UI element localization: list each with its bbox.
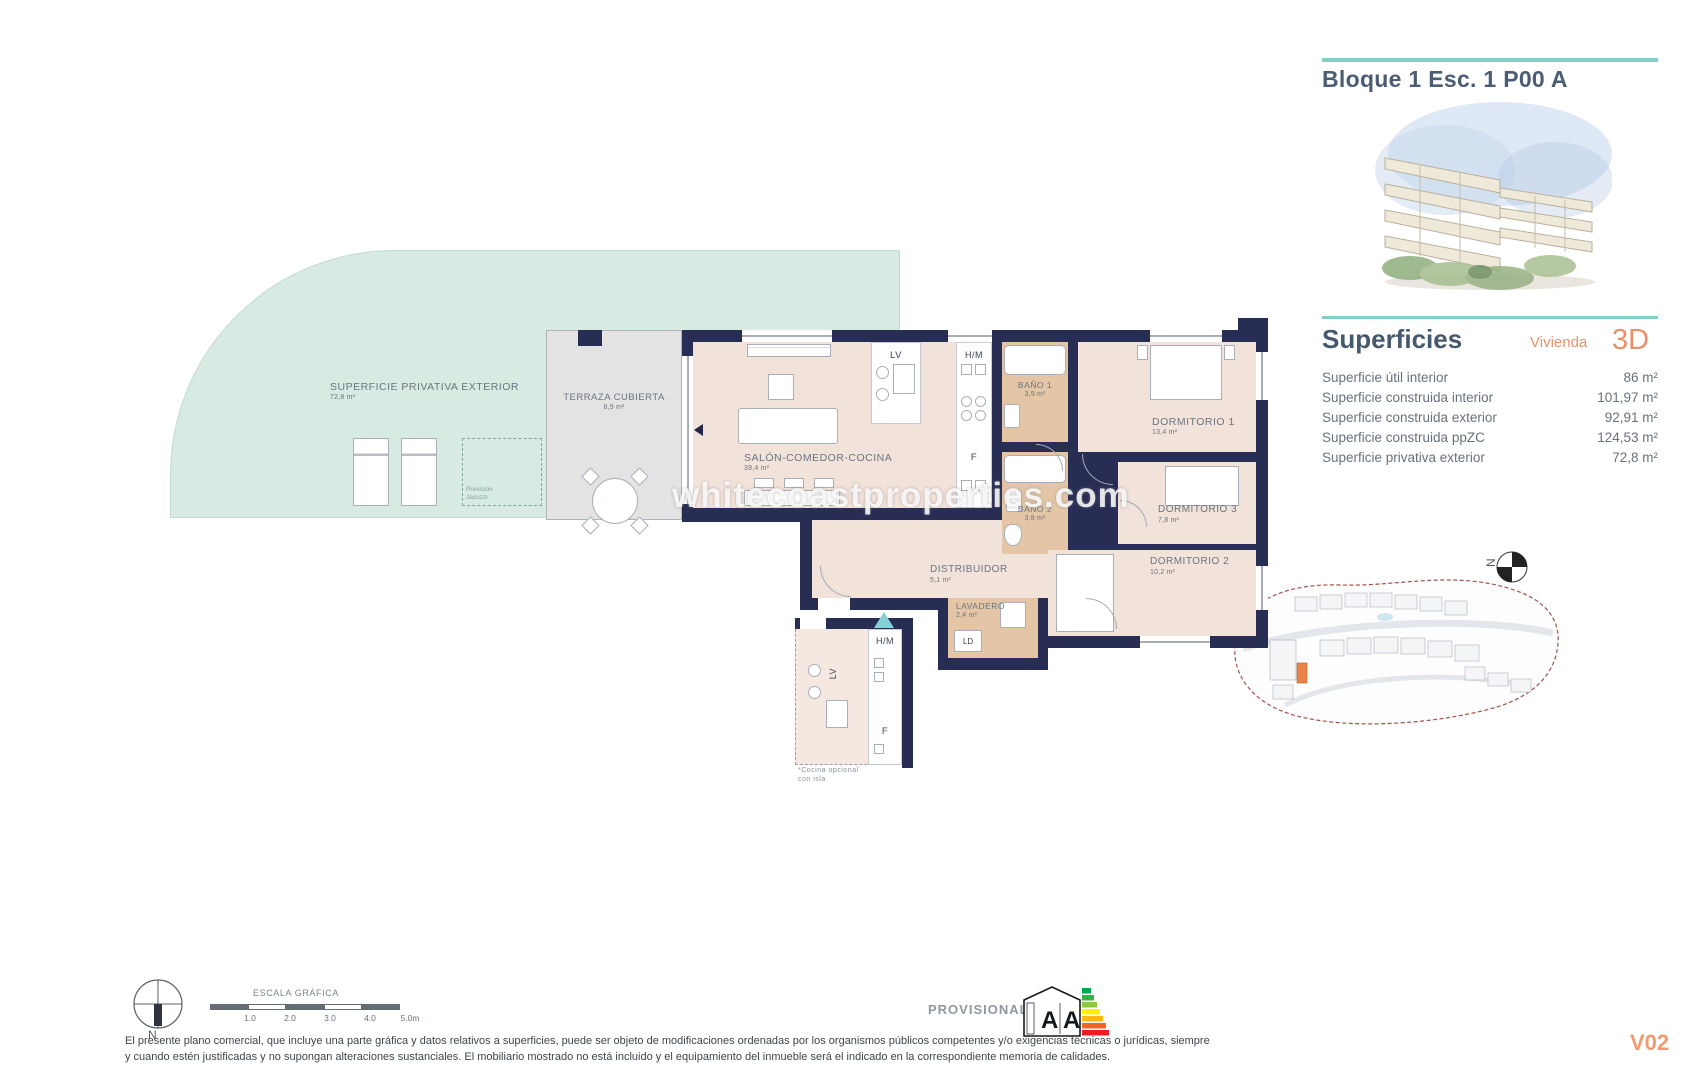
hob-burner (808, 664, 821, 677)
terrace-table (592, 478, 638, 524)
table-row-value: 92,91 m² (1500, 410, 1658, 425)
room-area: 3,9 m² (1002, 391, 1068, 400)
label-dorm1: DORMITORIO 1 13,4 m² (1152, 416, 1235, 438)
scale-tick: 1.0 (244, 1013, 256, 1023)
scale-segment (286, 1004, 324, 1010)
terrace-wall-stub (578, 330, 602, 346)
hob-burner (961, 410, 972, 421)
hob-burner (808, 686, 821, 699)
vivienda-label: Vivienda (1530, 334, 1587, 351)
window-glass-line (948, 335, 992, 337)
scale-tick: 5.0m (401, 1013, 420, 1023)
ld-label: LD (963, 637, 973, 646)
note-line: *Cocina opcional (798, 767, 859, 774)
nightstand (1224, 345, 1235, 360)
hob-burner (876, 388, 889, 401)
table-row-value: 72,8 m² (1500, 450, 1658, 465)
superficies-heading: Superficies (1322, 324, 1462, 355)
door-gap (800, 618, 826, 629)
bed (1165, 466, 1239, 506)
scale-label: ESCALA GRÁFICA (253, 988, 339, 998)
wall-block (902, 618, 913, 768)
scale-bar (210, 1004, 400, 1010)
watermark: whitecoastproperties.com (672, 476, 1130, 516)
room-name: TERRAZA CUBIERTA (563, 392, 665, 403)
version-label: V02 (1630, 1030, 1669, 1056)
label-lavadero: LAVADERO 2,4 m² (956, 601, 1005, 620)
label-terraza-cubierta: TERRAZA CUBIERTA 8,9 m² (548, 392, 680, 413)
room-area: 39,4 m² (744, 465, 892, 474)
label-dorm3: DORMITORIO 3 7,8 m² (1158, 504, 1237, 525)
appliance-tile (874, 672, 884, 682)
sofa (738, 408, 838, 444)
label-distribuidor: DISTRIBUIDOR 5,1 m² (930, 564, 1008, 585)
label-lv: LV (871, 350, 921, 362)
appliance-label: LV (890, 350, 902, 361)
label-f-optional: F (868, 726, 902, 738)
north-compass-icon (130, 978, 186, 1036)
ld-box: LD (954, 630, 982, 652)
room-area: 13,4 m² (1152, 429, 1235, 438)
window-glass-line (1140, 641, 1210, 643)
label-superficie-privativa-exterior: SUPERFICIE PRIVATIVA EXTERIOR 72,8 m² (330, 381, 519, 403)
table-row-label: Superficie construida interior (1322, 390, 1493, 405)
scale-segment (210, 1004, 248, 1010)
room-name: BAÑO 1 (1018, 380, 1052, 390)
entrance-marker (874, 612, 894, 628)
terrace-door-marker (694, 424, 703, 436)
site-north-label: N (1484, 558, 1498, 567)
note-line: con isla (798, 776, 826, 783)
appliance-label: H/M (965, 350, 983, 360)
bed (1150, 345, 1222, 400)
side-table (768, 374, 794, 400)
room-name: SALÓN-COMEDOR-COCINA (744, 452, 892, 464)
entrance-door-gap (818, 598, 850, 610)
disclaimer-text: El presente plano comercial, que incluye… (125, 1034, 1210, 1066)
room-area: 2,4 m² (956, 612, 1005, 621)
table-row-value: 124,53 m² (1500, 430, 1658, 445)
scale-tick: 2.0 (284, 1013, 296, 1023)
label-f: F (956, 452, 992, 464)
window-glass-line (1261, 352, 1263, 400)
table-row-value: 101,97 m² (1500, 390, 1658, 405)
room-area: 8,9 m² (548, 404, 680, 413)
table-row-label: Superficie útil interior (1322, 370, 1448, 385)
hob-burner (876, 366, 889, 379)
label-dorm2: DORMITORIO 2 10,2 m² (1150, 556, 1229, 577)
room-name: DORMITORIO 1 (1152, 416, 1235, 428)
prevision-note-line1: Previsión (466, 486, 493, 493)
label-lv-optional: LV (828, 668, 839, 679)
scale-tick: 4.0 (364, 1013, 376, 1023)
room-name: SUPERFICIE PRIVATIVA EXTERIOR (330, 381, 519, 393)
appliance-label: LV (828, 668, 838, 679)
prevision-note-line2: Jacuzzi (466, 494, 488, 501)
appliance-tile (975, 364, 986, 375)
teal-rule-top (1322, 58, 1658, 62)
sun-lounger (401, 438, 437, 506)
nightstand (1137, 345, 1148, 360)
room-name: DISTRIBUIDOR (930, 564, 1008, 575)
scale-segment (324, 1004, 362, 1010)
room-name: DORMITORIO 2 (1150, 556, 1229, 567)
site-plan: N (1225, 545, 1560, 745)
window-glass-line (742, 335, 832, 337)
scale-segment (362, 1004, 400, 1010)
table-row-label: Superficie construida exterior (1322, 410, 1497, 425)
room-name: DORMITORIO 3 (1158, 504, 1237, 515)
window-glass-line (1150, 335, 1222, 337)
bathtub (1004, 345, 1066, 375)
label-salon: SALÓN-COMEDOR-COCINA 39,4 m² (744, 452, 892, 474)
hob-burner (961, 396, 972, 407)
hob-burner (975, 410, 986, 421)
label-hm-optional: H/M (868, 636, 902, 647)
label-hm: H/M (956, 350, 992, 361)
appliance-tile (874, 658, 884, 668)
wall-corner-block (1238, 318, 1268, 340)
sun-lounger (353, 438, 389, 506)
table-row-value: 86 m² (1500, 370, 1658, 385)
scale-tick: 3.0 (324, 1013, 336, 1023)
appliance-label: H/M (876, 636, 894, 646)
floor-plan-page: { "header": { "title": "Bloque 1 Esc. 1 … (0, 0, 1700, 1080)
vivienda-value: 3D (1612, 324, 1649, 357)
kitchen-sink (826, 700, 848, 728)
table-row-label: Superficie privativa exterior (1322, 450, 1485, 465)
washbasin (1004, 404, 1020, 428)
kitchen-sink (893, 364, 915, 394)
appliance-tile (874, 744, 884, 754)
jacuzzi-provision-box: Previsión Jacuzzi (462, 438, 542, 506)
room-area: 7,8 m² (1158, 517, 1237, 526)
provisional-label: PROVISIONAL (928, 1002, 1029, 1017)
room-name: LAVADERO (956, 601, 1005, 611)
label-bano1: BAÑO 1 3,9 m² (1002, 380, 1068, 399)
teal-rule-mid (1322, 316, 1658, 319)
page-title: Bloque 1 Esc. 1 P00 A (1322, 66, 1568, 93)
room-area: 72,8 m² (330, 394, 519, 403)
energy-letter: A (1041, 1007, 1058, 1034)
appliance-tile (961, 364, 972, 375)
room-area: 5,1 m² (930, 577, 1008, 586)
optional-kitchen-note: *Cocina opcional con isla (798, 766, 859, 784)
window-glass-line (1261, 566, 1263, 610)
scale-segment (248, 1004, 286, 1010)
table-row-label: Superficie construida ppZC (1322, 430, 1485, 445)
room-area: 10,2 m² (1150, 569, 1229, 578)
appliance-label: F (882, 726, 888, 737)
highlighted-unit (1297, 663, 1307, 683)
appliance-label: F (971, 452, 977, 463)
energy-letter: A (1063, 1007, 1080, 1034)
hob-burner (975, 396, 986, 407)
energy-rating-icon: A A (1016, 982, 1112, 1040)
toilet (1004, 524, 1022, 546)
building-illustration (1350, 96, 1612, 296)
tv-bench (747, 344, 831, 357)
